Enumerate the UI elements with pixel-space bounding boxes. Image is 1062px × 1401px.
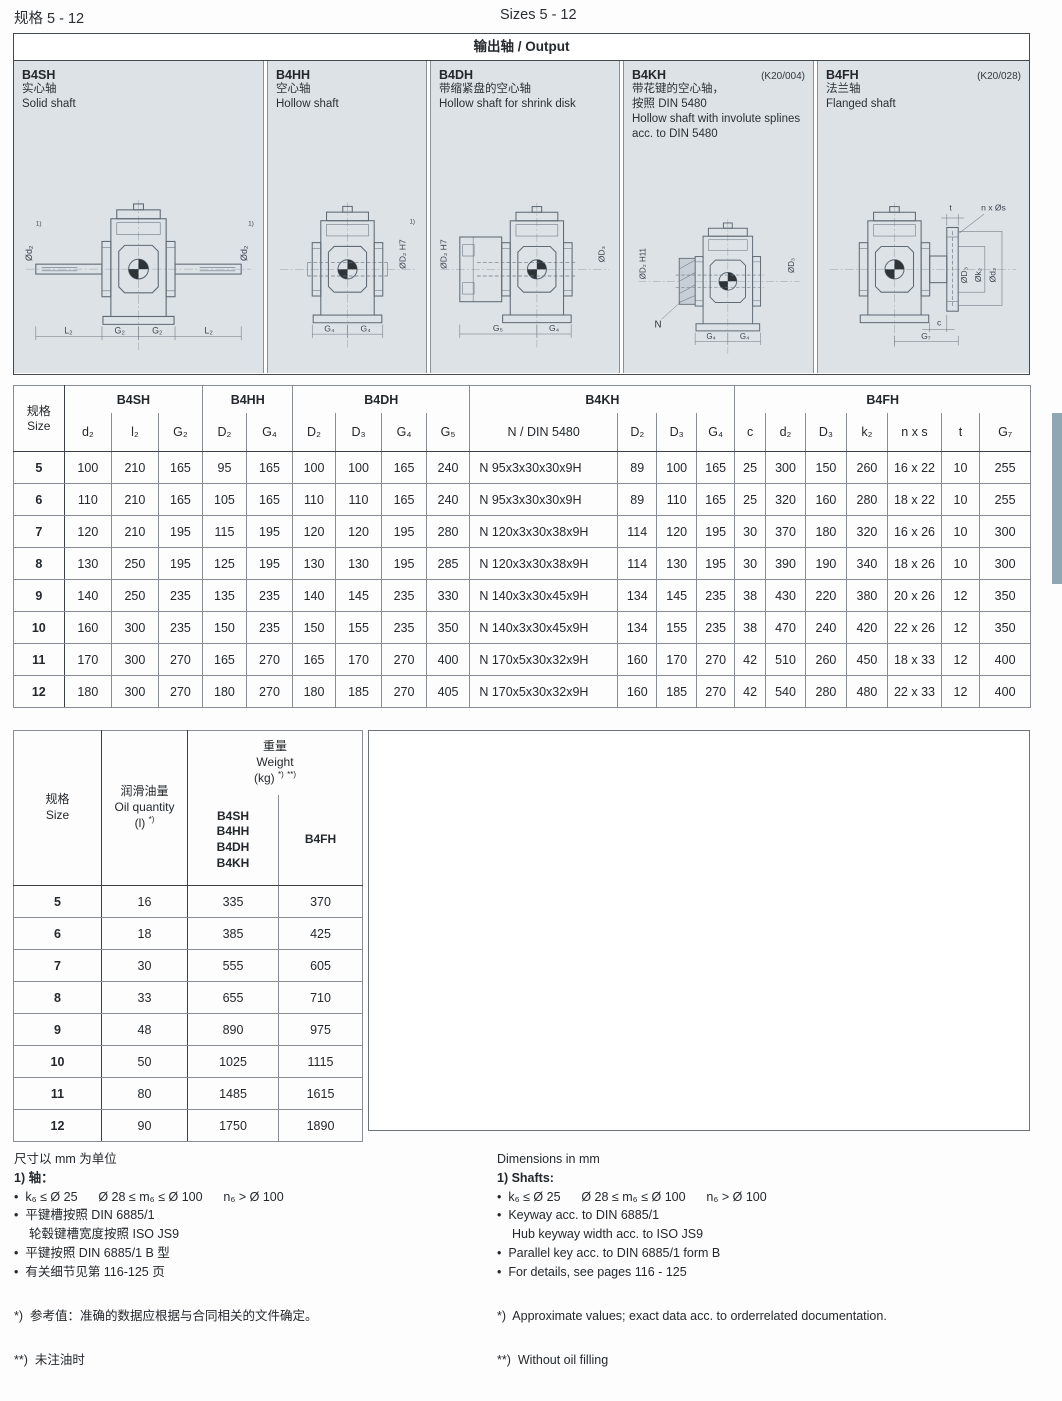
size-cell: 6 bbox=[14, 918, 102, 950]
dim-cell: 170 bbox=[64, 644, 112, 676]
col-header: G₅ bbox=[426, 413, 470, 452]
dim-cell: 110 bbox=[64, 484, 112, 516]
dim-cell: 170 bbox=[657, 644, 696, 676]
dim-cell: 155 bbox=[657, 612, 696, 644]
dim-cell: 255 bbox=[980, 452, 1031, 484]
col-header: l₂ bbox=[112, 413, 159, 452]
b4sh-drawing: L₂ G₂ G₂ L₂ Ød₂ 1) Ød₂ 1) bbox=[22, 187, 255, 365]
footnote-mark: *) bbox=[278, 770, 284, 779]
dim-cell: 95 bbox=[203, 452, 247, 484]
dim-cell: 16 x 22 bbox=[888, 452, 942, 484]
dim-cell: 140 bbox=[64, 580, 112, 612]
dim-cell: 110 bbox=[335, 484, 382, 516]
dim-cell: 120 bbox=[335, 516, 382, 548]
size-cell: 6 bbox=[14, 484, 65, 516]
dim-label: ØD₃ bbox=[596, 246, 606, 262]
dim-table-row: 7 120 210 195 115 195 120 120 195 280 N … bbox=[14, 516, 1031, 548]
variant-b4sh: B4SH 实心轴 Solid shaft bbox=[14, 61, 264, 373]
size-cell: 10 bbox=[14, 612, 65, 644]
weight-header-cn: 重量 bbox=[263, 739, 287, 753]
weight-cell: 1615 bbox=[279, 1078, 363, 1110]
dim-label: L₂ bbox=[204, 325, 212, 335]
oil-weight-row: 10 50 1025 1115 bbox=[14, 1046, 363, 1078]
dim-cell: 42 bbox=[735, 644, 765, 676]
weight-cell: 710 bbox=[279, 982, 363, 1014]
weight-header: 重量 Weight (kg) *) **) bbox=[188, 731, 363, 796]
dim-cell: 280 bbox=[806, 676, 846, 708]
oil-weight-row: 9 48 890 975 bbox=[14, 1014, 363, 1046]
dim-cell: 12 bbox=[941, 676, 979, 708]
variant-code: B4HH bbox=[217, 824, 250, 838]
dim-cell: 18 x 26 bbox=[888, 548, 942, 580]
note-line: • 平键按照 DIN 6885/1 B 型 bbox=[14, 1244, 497, 1263]
note-line: • k₆ ≤ Ø 25 Ø 28 ≤ m₆ ≤ Ø 100 n₆ > Ø 100 bbox=[14, 1188, 497, 1207]
variant-code: B4KH bbox=[217, 856, 250, 870]
group-b4kh: B4KH bbox=[470, 386, 735, 414]
dim-cell: 18 x 33 bbox=[888, 644, 942, 676]
size-header-cn: 规格 bbox=[27, 404, 51, 418]
dim-cell: 165 bbox=[696, 484, 734, 516]
note-line: • 有关细节见第 116-125 页 bbox=[14, 1263, 497, 1282]
double-star-note: **) 未注油时 bbox=[14, 1351, 497, 1370]
b4dh-drawing: G₅ G₄ ØD₂ H7 ØD₃ bbox=[437, 187, 613, 365]
size-cell: 11 bbox=[14, 644, 65, 676]
col-header: G₇ bbox=[980, 413, 1031, 452]
catalog-page: 规格 5 - 12 Sizes 5 - 12 输出轴 / Output B4SH… bbox=[0, 0, 1062, 1401]
dim-cell: 22 x 33 bbox=[888, 676, 942, 708]
oil-weight-row: 5 16 335 370 bbox=[14, 886, 363, 918]
variant-head: B4KH (K20/004) bbox=[632, 68, 805, 82]
variant-head: B4FH (K20/028) bbox=[826, 68, 1021, 82]
dim-label: Ød₂ bbox=[239, 246, 249, 261]
size-cell: 5 bbox=[14, 452, 65, 484]
size-cell: 11 bbox=[14, 1078, 102, 1110]
dim-label: Ød₂ bbox=[24, 246, 34, 261]
note-line: • For details, see pages 116 - 125 bbox=[497, 1263, 1030, 1282]
col-header: G₂ bbox=[158, 413, 203, 452]
dim-cell: 270 bbox=[158, 644, 203, 676]
footnotes: 尺寸以 mm 为单位 1) 轴： • k₆ ≤ Ø 25 Ø 28 ≤ m₆ ≤… bbox=[14, 1150, 1030, 1370]
dim-cell: 10 bbox=[941, 484, 979, 516]
dim-cell: 285 bbox=[426, 548, 470, 580]
dim-cell: 540 bbox=[765, 676, 805, 708]
weight-cell: 555 bbox=[188, 950, 279, 982]
dim-cell: 150 bbox=[293, 612, 335, 644]
dimension-table: 规格 Size B4SH B4HH B4DH B4KH B4FH d₂ l₂ G… bbox=[13, 385, 1031, 708]
dim-label: G₇ bbox=[921, 331, 931, 341]
col-header: c bbox=[735, 413, 765, 452]
variant-name-en: Hollow shaft with involute splines acc. … bbox=[632, 112, 805, 142]
dim-table-row: 12 180 300 270 180 270 180 185 270 405 N… bbox=[14, 676, 1031, 708]
dim-cell: 235 bbox=[158, 580, 203, 612]
dim-cell: 195 bbox=[246, 516, 293, 548]
dim-label: G₄ bbox=[324, 323, 335, 333]
note-line: • 平键槽按照 DIN 6885/1 bbox=[14, 1206, 497, 1225]
col-header: D₃ bbox=[657, 413, 696, 452]
dim-cell: 150 bbox=[806, 452, 846, 484]
size-header: 规格 Size bbox=[14, 386, 65, 452]
oil-cell: 18 bbox=[102, 918, 188, 950]
variant-head: B4HH bbox=[276, 68, 418, 82]
variant-code: B4SH bbox=[22, 68, 55, 82]
weight-header-en: Weight bbox=[256, 755, 293, 769]
variant-name-cn: 带花键的空心轴， bbox=[632, 82, 805, 97]
weight-cell: 1890 bbox=[279, 1110, 363, 1142]
dim-cell: 135 bbox=[203, 580, 247, 612]
dim-label: n x Øs bbox=[981, 202, 1006, 212]
dim-table-row: 11 170 300 270 165 270 165 170 270 400 N… bbox=[14, 644, 1031, 676]
spline-spec-cell: N 120x3x30x38x9H bbox=[470, 516, 618, 548]
weight-cell: 1025 bbox=[188, 1046, 279, 1078]
dim-cell: 470 bbox=[765, 612, 805, 644]
size-cell: 8 bbox=[14, 982, 102, 1014]
dim-cell: 25 bbox=[735, 452, 765, 484]
dim-cell: 22 x 26 bbox=[888, 612, 942, 644]
dim-cell: 235 bbox=[246, 612, 293, 644]
star-note: *) 参考值：准确的数据应根据与合同相关的文件确定。 bbox=[14, 1307, 497, 1326]
dim-cell: 270 bbox=[696, 644, 734, 676]
dim-label: ØD₃ bbox=[959, 267, 969, 283]
note-line: • Keyway acc. to DIN 6885/1 bbox=[497, 1206, 1030, 1225]
dim-cell: 270 bbox=[382, 676, 427, 708]
dim-cell: 150 bbox=[203, 612, 247, 644]
dim-cell: 195 bbox=[696, 516, 734, 548]
spline-n-label: N bbox=[654, 319, 661, 330]
dim-table-row: 5 100 210 165 95 165 100 100 165 240 N 9… bbox=[14, 452, 1031, 484]
oil-unit: (l) bbox=[135, 816, 146, 830]
dim-cell: 120 bbox=[64, 516, 112, 548]
dim-cell: 250 bbox=[112, 580, 159, 612]
lower-section: 规格 Size 润滑油量 Oil quantity (l) *) 重量 Weig… bbox=[13, 730, 1031, 1133]
dim-cell: 195 bbox=[158, 548, 203, 580]
footnote-mark: 1) bbox=[248, 221, 254, 228]
oil-cell: 48 bbox=[102, 1014, 188, 1046]
variant-columns: B4SH 实心轴 Solid shaft bbox=[14, 61, 1029, 373]
page-edge-tab bbox=[1052, 413, 1062, 584]
dim-label: G₄ bbox=[360, 323, 371, 333]
dim-cell: 89 bbox=[618, 452, 657, 484]
dim-cell: 145 bbox=[657, 580, 696, 612]
oil-weight-row: 7 30 555 605 bbox=[14, 950, 363, 982]
variant-code: B4DH bbox=[217, 840, 250, 854]
dim-cell: 405 bbox=[426, 676, 470, 708]
dim-label: G₅ bbox=[493, 323, 503, 333]
group-b4fh: B4FH bbox=[735, 386, 1031, 414]
weight-cell: 370 bbox=[279, 886, 363, 918]
col-header: k₂ bbox=[846, 413, 887, 452]
size-cell: 7 bbox=[14, 516, 65, 548]
oil-cell: 50 bbox=[102, 1046, 188, 1078]
dim-cell: 120 bbox=[657, 516, 696, 548]
dim-cell: 240 bbox=[426, 484, 470, 516]
variant-code: B4DH bbox=[439, 68, 473, 82]
page-title-en: Sizes 5 - 12 bbox=[500, 7, 577, 23]
dim-cell: 20 x 26 bbox=[888, 580, 942, 612]
dim-cell: 340 bbox=[846, 548, 887, 580]
col-header: G₄ bbox=[696, 413, 734, 452]
dim-cell: 114 bbox=[618, 516, 657, 548]
footnote-mark: 1) bbox=[409, 219, 415, 226]
dim-cell: 390 bbox=[765, 548, 805, 580]
dim-cell: 38 bbox=[735, 612, 765, 644]
size-header: 规格 Size bbox=[14, 731, 102, 886]
dim-cell: 185 bbox=[657, 676, 696, 708]
dim-cell: 270 bbox=[382, 644, 427, 676]
spline-spec-cell: N 120x3x30x38x9H bbox=[470, 548, 618, 580]
note-line: Hub keyway width acc. to ISO JS9 bbox=[497, 1225, 1030, 1244]
dim-cell: 130 bbox=[657, 548, 696, 580]
dim-cell: 165 bbox=[382, 452, 427, 484]
variant-name-cn: 法兰轴 bbox=[826, 82, 1021, 97]
dim-label: ØD₂ H7 bbox=[439, 239, 449, 269]
size-cell: 12 bbox=[14, 676, 65, 708]
spline-spec-cell: N 95x3x30x30x9H bbox=[470, 452, 618, 484]
col-header: G₄ bbox=[382, 413, 427, 452]
dim-cell: 510 bbox=[765, 644, 805, 676]
dim-cell: 250 bbox=[112, 548, 159, 580]
spline-spec-cell: N 170x5x30x32x9H bbox=[470, 644, 618, 676]
note-line: 1) Shafts: bbox=[497, 1169, 1030, 1188]
spline-spec-cell: N 140x3x30x45x9H bbox=[470, 580, 618, 612]
size-header-cn: 规格 bbox=[45, 792, 69, 806]
weight-cell: 605 bbox=[279, 950, 363, 982]
oil-weight-table: 规格 Size 润滑油量 Oil quantity (l) *) 重量 Weig… bbox=[13, 730, 363, 1142]
variant-code: B4HH bbox=[276, 68, 310, 82]
oil-cell: 33 bbox=[102, 982, 188, 1014]
dim-cell: 165 bbox=[246, 452, 293, 484]
dim-cell: 12 bbox=[941, 644, 979, 676]
page-title-cn: 规格 5 - 12 bbox=[14, 7, 84, 28]
dim-cell: 180 bbox=[64, 676, 112, 708]
dim-label: L₂ bbox=[64, 325, 72, 335]
note-line: • k₆ ≤ Ø 25 Ø 28 ≤ m₆ ≤ Ø 100 n₆ > Ø 100 bbox=[497, 1188, 1030, 1207]
dim-cell: 235 bbox=[696, 612, 734, 644]
col-header: N / DIN 5480 bbox=[470, 413, 618, 452]
dim-cell: 30 bbox=[735, 548, 765, 580]
dim-cell: 12 bbox=[941, 612, 979, 644]
dim-label: G₂ bbox=[152, 325, 162, 335]
dim-cell: 30 bbox=[735, 516, 765, 548]
variant-name-en: Hollow shaft bbox=[276, 97, 418, 112]
dim-cell: 240 bbox=[426, 452, 470, 484]
variant-name-en: Hollow shaft for shrink disk bbox=[439, 97, 611, 112]
dim-cell: 16 x 26 bbox=[888, 516, 942, 548]
size-cell: 7 bbox=[14, 950, 102, 982]
dim-cell: 165 bbox=[246, 484, 293, 516]
dim-cell: 195 bbox=[158, 516, 203, 548]
dim-cell: 100 bbox=[657, 452, 696, 484]
dim-cell: 100 bbox=[335, 452, 382, 484]
dim-cell: 300 bbox=[112, 676, 159, 708]
dim-cell: 180 bbox=[806, 516, 846, 548]
size-header-en: Size bbox=[27, 419, 50, 433]
variant-ref: (K20/028) bbox=[977, 71, 1021, 82]
dim-cell: 185 bbox=[335, 676, 382, 708]
dim-label: G₄ bbox=[549, 323, 560, 333]
dim-table-body: 5 100 210 165 95 165 100 100 165 240 N 9… bbox=[14, 452, 1031, 708]
dim-cell: 450 bbox=[846, 644, 887, 676]
dim-cell: 300 bbox=[765, 452, 805, 484]
dim-cell: 195 bbox=[246, 548, 293, 580]
dim-cell: 115 bbox=[203, 516, 247, 548]
dim-cell: 195 bbox=[696, 548, 734, 580]
dim-cell: 100 bbox=[64, 452, 112, 484]
dim-table-row: 8 130 250 195 125 195 130 130 195 285 N … bbox=[14, 548, 1031, 580]
dim-cell: 145 bbox=[335, 580, 382, 612]
variant-code: B4FH bbox=[826, 68, 859, 82]
oil-cell: 80 bbox=[102, 1078, 188, 1110]
dim-label: c bbox=[937, 317, 942, 327]
footnotes-cn: 尺寸以 mm 为单位 1) 轴： • k₆ ≤ Ø 25 Ø 28 ≤ m₆ ≤… bbox=[14, 1150, 497, 1370]
size-header-en: Size bbox=[46, 808, 69, 822]
dim-cell: 180 bbox=[203, 676, 247, 708]
dim-cell: 165 bbox=[158, 452, 203, 484]
dim-cell: 260 bbox=[846, 452, 887, 484]
weight-cell: 1485 bbox=[188, 1078, 279, 1110]
weight-col-a-header: B4SH B4HH B4DH B4KH bbox=[188, 795, 279, 886]
variant-name-cn: 带缩紧盘的空心轴 bbox=[439, 82, 611, 97]
dim-cell: 160 bbox=[618, 676, 657, 708]
dim-label: ØD₂ H7 bbox=[397, 239, 407, 269]
note-line: 尺寸以 mm 为单位 bbox=[14, 1150, 497, 1169]
oil-cell: 16 bbox=[102, 886, 188, 918]
spline-spec-cell: N 95x3x30x30x9H bbox=[470, 484, 618, 516]
col-header: D₂ bbox=[203, 413, 247, 452]
dim-cell: 160 bbox=[618, 644, 657, 676]
spline-spec-cell: N 170x5x30x32x9H bbox=[470, 676, 618, 708]
note-line: 1) 轴： bbox=[14, 1169, 497, 1188]
dim-cell: 114 bbox=[618, 548, 657, 580]
dim-cell: 125 bbox=[203, 548, 247, 580]
dim-cell: 165 bbox=[158, 484, 203, 516]
dim-cell: 18 x 22 bbox=[888, 484, 942, 516]
col-header: D₃ bbox=[335, 413, 382, 452]
dim-label: G₄ bbox=[739, 332, 748, 341]
empty-table-area bbox=[368, 730, 1030, 1131]
weight-cell: 335 bbox=[188, 886, 279, 918]
col-header: n x s bbox=[888, 413, 942, 452]
oil-quantity-header: 润滑油量 Oil quantity (l) *) bbox=[102, 731, 188, 886]
weight-col-b-header: B4FH bbox=[279, 795, 363, 886]
dim-cell: 10 bbox=[941, 516, 979, 548]
oil-cell: 90 bbox=[102, 1110, 188, 1142]
dim-cell: 165 bbox=[382, 484, 427, 516]
spline-spec-cell: N 140x3x30x45x9H bbox=[470, 612, 618, 644]
variant-name-en: Flanged shaft bbox=[826, 97, 1021, 112]
weight-cell: 655 bbox=[188, 982, 279, 1014]
dim-cell: 25 bbox=[735, 484, 765, 516]
variant-b4fh: B4FH (K20/028) 法兰轴 Flanged shaft bbox=[817, 61, 1029, 373]
dim-cell: 350 bbox=[426, 612, 470, 644]
variant-name-cn: 实心轴 bbox=[22, 82, 255, 97]
dim-cell: 130 bbox=[64, 548, 112, 580]
dim-cell: 134 bbox=[618, 612, 657, 644]
col-header: D₃ bbox=[806, 413, 846, 452]
size-cell: 9 bbox=[14, 1014, 102, 1046]
oil-header-cn: 润滑油量 bbox=[120, 784, 168, 798]
footnotes-en: Dimensions in mm 1) Shafts: • k₆ ≤ Ø 25 … bbox=[497, 1150, 1030, 1370]
dim-cell: 320 bbox=[846, 516, 887, 548]
dim-table-head: 规格 Size B4SH B4HH B4DH B4KH B4FH d₂ l₂ G… bbox=[14, 386, 1031, 452]
dim-cell: 210 bbox=[112, 516, 159, 548]
dim-cell: 110 bbox=[657, 484, 696, 516]
col-header: d₂ bbox=[765, 413, 805, 452]
oil-weight-row: 8 33 655 710 bbox=[14, 982, 363, 1014]
dim-cell: 400 bbox=[980, 676, 1031, 708]
dim-label: t bbox=[949, 202, 952, 212]
size-cell: 12 bbox=[14, 1110, 102, 1142]
dim-cell: 320 bbox=[765, 484, 805, 516]
weight-cell: 1115 bbox=[279, 1046, 363, 1078]
variant-name-cn: 空心轴 bbox=[276, 82, 418, 97]
weight-cell: 425 bbox=[279, 918, 363, 950]
weight-cell: 1750 bbox=[188, 1110, 279, 1142]
dim-cell: 130 bbox=[335, 548, 382, 580]
variant-code: B4KH bbox=[632, 68, 666, 82]
dim-cell: 280 bbox=[846, 484, 887, 516]
dim-cell: 300 bbox=[980, 516, 1031, 548]
dim-cell: 100 bbox=[293, 452, 335, 484]
dim-cell: 330 bbox=[426, 580, 470, 612]
dim-cell: 300 bbox=[980, 548, 1031, 580]
dim-cell: 42 bbox=[735, 676, 765, 708]
dim-cell: 300 bbox=[112, 612, 159, 644]
dim-cell: 210 bbox=[112, 452, 159, 484]
dim-cell: 480 bbox=[846, 676, 887, 708]
col-header: D₂ bbox=[293, 413, 335, 452]
oil-weight-row: 12 90 1750 1890 bbox=[14, 1110, 363, 1142]
dim-cell: 110 bbox=[293, 484, 335, 516]
dim-cell: 300 bbox=[112, 644, 159, 676]
dim-cell: 130 bbox=[293, 548, 335, 580]
dim-cell: 170 bbox=[335, 644, 382, 676]
dim-cell: 165 bbox=[203, 644, 247, 676]
oil-weight-row: 11 80 1485 1615 bbox=[14, 1078, 363, 1110]
dim-cell: 120 bbox=[293, 516, 335, 548]
dim-label: Ød₂ bbox=[987, 268, 997, 283]
star-note: *) Approximate values; exact data acc. t… bbox=[497, 1307, 1030, 1326]
weight-unit: (kg) bbox=[254, 771, 275, 785]
footnote-mark: *) bbox=[149, 815, 155, 824]
dim-cell: 235 bbox=[246, 580, 293, 612]
dim-cell: 400 bbox=[980, 644, 1031, 676]
variant-code: B4SH bbox=[217, 809, 249, 823]
dim-cell: 235 bbox=[158, 612, 203, 644]
weight-cell: 975 bbox=[279, 1014, 363, 1046]
b4kh-drawing: N G₄ G₄ ØD₂ H11 ØD₃ bbox=[635, 210, 803, 365]
dim-cell: 89 bbox=[618, 484, 657, 516]
col-header: d₂ bbox=[64, 413, 112, 452]
variant-head: B4DH bbox=[439, 68, 611, 82]
double-star-note: **) Without oil filling bbox=[497, 1351, 1030, 1370]
dim-cell: 270 bbox=[246, 676, 293, 708]
dim-cell: 240 bbox=[806, 612, 846, 644]
dim-cell: 155 bbox=[335, 612, 382, 644]
footnote-mark: **) bbox=[287, 770, 296, 779]
variant-name-en: Solid shaft bbox=[22, 97, 255, 112]
output-shaft-panel: 输出轴 / Output B4SH 实心轴 Solid shaft bbox=[13, 33, 1030, 375]
dim-cell: 190 bbox=[806, 548, 846, 580]
dim-cell: 12 bbox=[941, 580, 979, 612]
dim-cell: 195 bbox=[382, 516, 427, 548]
dim-cell: 235 bbox=[382, 580, 427, 612]
dim-cell: 235 bbox=[382, 612, 427, 644]
dim-cell: 400 bbox=[426, 644, 470, 676]
dim-cell: 280 bbox=[426, 516, 470, 548]
dim-cell: 350 bbox=[980, 612, 1031, 644]
dim-label: G₂ bbox=[115, 325, 125, 335]
dim-cell: 350 bbox=[980, 580, 1031, 612]
